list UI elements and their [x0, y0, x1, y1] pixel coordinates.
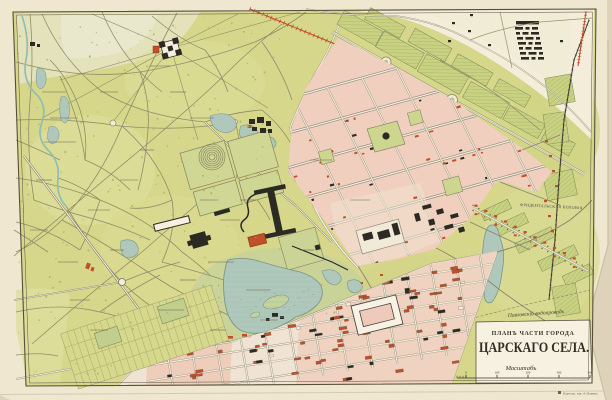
svg-text:100: 100	[495, 370, 500, 374]
svg-text:200: 200	[526, 370, 531, 374]
svg-text:Масштабъ: Масштабъ	[505, 365, 537, 372]
svg-text:ПЛАНЪ ЧАСТИ ГОРОДА: ПЛАНЪ ЧАСТИ ГОРОДА	[492, 331, 575, 337]
svg-text:Картогр. зав. А.Ильина: Картогр. зав. А.Ильина	[563, 392, 598, 396]
svg-text:300: 300	[557, 370, 562, 374]
svg-text:ЦАРСКАГО СЕЛА.: ЦАРСКАГО СЕЛА.	[479, 340, 589, 356]
